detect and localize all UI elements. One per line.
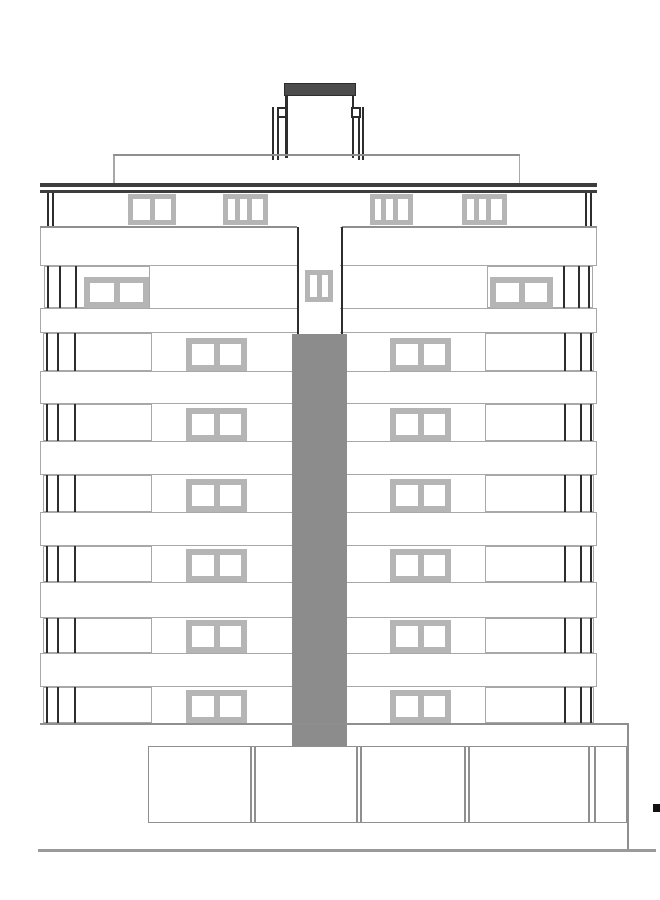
podium-base: [0, 0, 660, 900]
core-shaft: [0, 0, 660, 900]
balcony-glazing-box: [43, 333, 152, 371]
balcony-glazing-box: [43, 687, 152, 723]
parapet: [0, 0, 660, 900]
roof-post: [272, 107, 274, 160]
railing-mullion: [563, 266, 565, 308]
railing-mullion: [46, 475, 48, 512]
window-pane: [192, 344, 214, 365]
window-pane: [220, 696, 242, 717]
railing-mullion: [590, 687, 592, 723]
window-pane: [396, 414, 418, 435]
attic-edge-line: [52, 193, 54, 227]
facade-window: [84, 277, 149, 308]
railing-mullion: [580, 333, 582, 371]
attic-window: [223, 194, 268, 225]
window-pane: [220, 485, 242, 506]
attic-base-line-right: [342, 226, 597, 228]
attic-window: [370, 194, 413, 225]
roof-post: [362, 107, 364, 160]
balcony-glazing-box: [485, 546, 594, 582]
balcony-slab-band: [40, 653, 597, 687]
balcony-slab-band: [40, 308, 597, 333]
window-pane: [192, 555, 214, 576]
window-pane: [322, 275, 329, 297]
central-recess: [0, 0, 660, 900]
window-pane: [424, 696, 446, 717]
facade-window: [186, 338, 247, 371]
railing-mullion: [590, 546, 592, 582]
podium-divider: [250, 746, 252, 823]
site-marker: [653, 804, 660, 812]
railing-mullion: [588, 266, 590, 308]
window-pane: [240, 199, 247, 220]
railing-mullion: [590, 618, 592, 653]
podium-right-edge: [627, 723, 629, 851]
window-pane: [252, 199, 263, 220]
window-pane: [467, 199, 474, 220]
window-pane: [220, 414, 242, 435]
penthouse-wall-left: [113, 156, 115, 184]
penthouse-deck: [0, 0, 660, 900]
floor-7: [0, 0, 660, 900]
railing-mullion: [578, 266, 580, 308]
railing-mullion: [46, 687, 48, 723]
facade-window: [390, 620, 451, 653]
railing-mullion: [74, 404, 76, 441]
building-elevation-drawing: [0, 0, 660, 900]
railing-mullion: [564, 618, 566, 653]
railing-mullion: [590, 333, 592, 371]
facade-window: [186, 690, 247, 723]
balcony-glazing-box: [44, 266, 150, 308]
railing-mullion: [57, 475, 59, 512]
railing-mullion: [57, 546, 59, 582]
core-column: [292, 334, 347, 748]
penthouse-wall-right: [519, 156, 521, 184]
railing-mullion: [564, 333, 566, 371]
penthouse-roof-line: [113, 154, 520, 156]
roof-bracket-right: [351, 107, 361, 118]
podium-divider: [464, 746, 466, 823]
window-pane: [424, 485, 446, 506]
podium-divider: [588, 746, 590, 823]
window-pane: [396, 344, 418, 365]
railing-mullion: [564, 404, 566, 441]
floors-layer: [0, 0, 660, 900]
railing-mullion: [57, 404, 59, 441]
roof-bracket-left: [277, 107, 287, 118]
railing-mullion: [46, 546, 48, 582]
railing-mullion: [57, 618, 59, 653]
window-pane: [396, 696, 418, 717]
floor-8: [0, 0, 660, 900]
window-pane: [192, 626, 214, 647]
window-pane: [192, 485, 214, 506]
attic-edge-line: [590, 193, 592, 227]
railing-mullion: [580, 687, 582, 723]
window-pane: [155, 199, 172, 220]
window-pane: [396, 485, 418, 506]
balcony-glazing-box: [43, 618, 152, 653]
window-pane: [228, 199, 235, 220]
window-pane: [424, 555, 446, 576]
ground: [0, 0, 660, 900]
attic-edge-line: [47, 193, 49, 227]
recess-surface: [299, 227, 340, 335]
railing-mullion: [74, 475, 76, 512]
railing-mullion: [75, 266, 77, 308]
recess-wall-right: [341, 227, 343, 335]
window-pane: [90, 283, 114, 302]
window-pane: [424, 344, 446, 365]
balcony-slab-band: [40, 582, 597, 618]
window-pane: [396, 555, 418, 576]
window-pane: [479, 199, 486, 220]
window-pane: [375, 199, 381, 220]
railing-mullion: [580, 404, 582, 441]
facade-window: [186, 479, 247, 512]
facade-base-line: [40, 723, 629, 725]
facade-window: [390, 408, 451, 441]
facade-window: [390, 549, 451, 582]
window-pane: [525, 283, 548, 302]
balcony-slab-band: [40, 371, 597, 404]
window-pane: [133, 199, 150, 220]
railing-mullion: [580, 546, 582, 582]
balcony-glazing-box: [485, 333, 594, 371]
stair-tower-wall-right: [352, 96, 355, 158]
balcony-glazing-box: [485, 687, 594, 723]
facade-window: [390, 690, 451, 723]
podium-divider: [594, 746, 596, 823]
balcony-glazing-box: [43, 404, 152, 441]
floor-4: [0, 0, 660, 900]
railing-mullion: [564, 475, 566, 512]
balcony-glazing-box: [485, 475, 594, 512]
railing-mullion: [590, 404, 592, 441]
attic-window: [462, 194, 507, 225]
parapet-bar-upper: [40, 183, 597, 187]
facade-window: [186, 549, 247, 582]
railing-mullion: [46, 404, 48, 441]
stair-tower-cap: [284, 83, 356, 96]
railing-mullion: [46, 618, 48, 653]
facade-window: [390, 338, 451, 371]
recess-wall-left: [297, 227, 299, 335]
rooftop-structure: [0, 0, 660, 900]
facade-window: [390, 479, 451, 512]
window-pane: [192, 696, 214, 717]
railing-mullion: [580, 475, 582, 512]
podium-divider: [360, 746, 362, 823]
facade-window: [186, 408, 247, 441]
window-pane: [220, 626, 242, 647]
railing-mullion: [580, 618, 582, 653]
balcony-glazing-box: [43, 546, 152, 582]
balcony-glazing-box: [43, 475, 152, 512]
window-pane: [424, 626, 446, 647]
window-pane: [496, 283, 519, 302]
balcony-slab-band: [40, 441, 597, 475]
attic-base-line-left: [40, 226, 297, 228]
slab-bands-layer: [0, 0, 660, 900]
attic-floor: [0, 0, 660, 900]
floor-2: [0, 0, 660, 900]
railing-mullion: [74, 546, 76, 582]
window-pane: [220, 344, 242, 365]
window-pane: [386, 199, 392, 220]
railing-mullion: [57, 333, 59, 371]
balcony-glazing-box: [485, 404, 594, 441]
podium-divider: [254, 746, 256, 823]
railing-mullion: [74, 687, 76, 723]
podium: [148, 746, 627, 823]
roof-post: [358, 107, 360, 160]
railing-mullion: [590, 475, 592, 512]
roof-post: [277, 107, 279, 160]
railing-mullion: [564, 546, 566, 582]
balcony-slab-band: [40, 227, 597, 267]
parapet-bar-lower: [40, 190, 597, 194]
recess-window: [305, 270, 333, 302]
attic-edge-line: [585, 193, 587, 227]
attic-window: [128, 194, 176, 225]
balcony-slab-band: [40, 512, 597, 546]
railing-mullion: [47, 266, 49, 308]
floor-5: [0, 0, 660, 900]
podium-divider: [356, 746, 358, 823]
floor-3: [0, 0, 660, 900]
railing-mullion: [74, 333, 76, 371]
stair-tower-wall-left: [285, 96, 288, 158]
balcony-glazing-box: [485, 618, 594, 653]
facade-window: [490, 277, 553, 308]
window-pane: [120, 283, 144, 302]
window-pane: [398, 199, 408, 220]
window-pane: [396, 626, 418, 647]
window-pane: [424, 414, 446, 435]
floor-6: [0, 0, 660, 900]
window-pane: [491, 199, 502, 220]
railing-mullion: [564, 687, 566, 723]
podium-divider: [468, 746, 470, 823]
railing-mullion: [74, 618, 76, 653]
window-pane: [220, 555, 242, 576]
railing-mullion: [46, 333, 48, 371]
window-pane: [310, 275, 317, 297]
window-pane: [192, 414, 214, 435]
railing-mullion: [59, 266, 61, 308]
facade-window: [186, 620, 247, 653]
balcony-glazing-box: [487, 266, 593, 308]
railing-mullion: [57, 687, 59, 723]
ground-line: [38, 849, 656, 852]
